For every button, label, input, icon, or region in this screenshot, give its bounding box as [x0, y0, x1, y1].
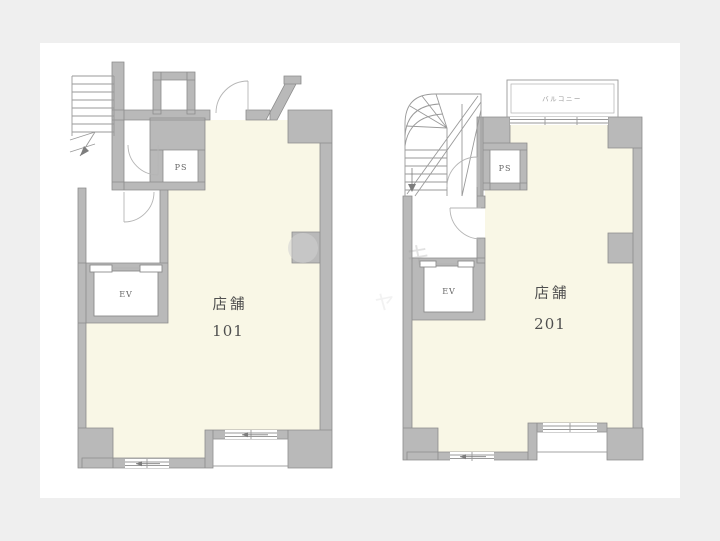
room-label-201: 店舗 — [535, 285, 570, 302]
balcony-201: バルコニー — [507, 80, 618, 125]
window-201 — [450, 452, 494, 461]
watermark-circle — [288, 233, 318, 263]
watermark-char-1: キ — [406, 242, 430, 270]
unit-number-101: 101 — [212, 322, 244, 340]
balcony-label: バルコニー — [542, 95, 582, 103]
bay-window-101 — [225, 430, 277, 439]
watermark-char-2: ャ — [372, 286, 396, 314]
elevator-label-201: EV — [442, 287, 456, 296]
window-101 — [125, 459, 169, 468]
bay-window-201 — [543, 423, 597, 432]
pipe-space-label-101: PS — [175, 163, 188, 172]
floor-plan-page: EV PS 店舗 10 — [0, 0, 720, 541]
balcony-window-201 — [510, 117, 608, 125]
unit-number-201: 201 — [534, 315, 566, 333]
elevator-101: EV — [90, 265, 162, 316]
floor-plan-canvas: EV PS 店舗 10 — [0, 0, 720, 541]
pipe-space-label-201: PS — [499, 164, 512, 173]
elevator-label-101: EV — [119, 290, 133, 299]
room-label-101: 店舗 — [213, 296, 248, 313]
